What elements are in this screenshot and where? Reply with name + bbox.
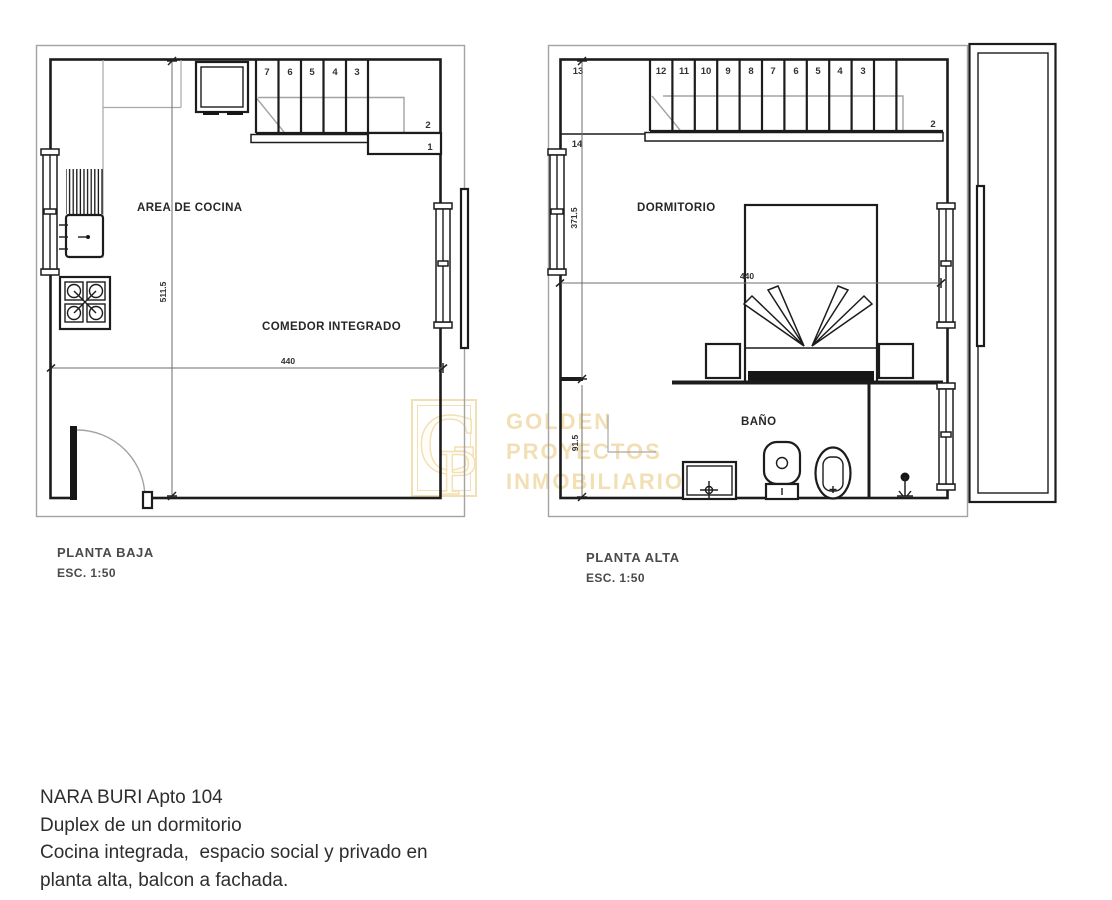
stair-number: 7 [770, 66, 775, 77]
stair-number: 4 [837, 66, 843, 77]
stair-number: 8 [748, 66, 753, 77]
stair-landing-number: 2 [930, 119, 935, 130]
room-label-bathroom: BAÑO [741, 415, 776, 428]
stair-last-step-number: 14 [572, 139, 583, 150]
stair-number: 4 [332, 67, 338, 78]
vanity-sink-icon [683, 462, 736, 500]
description-line: planta alta, balcon a fachada. [40, 867, 428, 895]
stair-number: 6 [287, 67, 292, 78]
stair-number: 3 [354, 67, 359, 78]
door-leaf [70, 426, 77, 500]
watermark: G P GOLDEN PROYECTOS INMOBILIARIOS [412, 400, 701, 508]
stair-number: 11 [679, 66, 690, 77]
watermark-line-1: GOLDEN [506, 409, 612, 434]
bidet-icon [816, 448, 851, 499]
watermark-logo: G P [412, 400, 479, 508]
entry-door [70, 426, 152, 508]
description-line: NARA BURI Apto 104 [40, 784, 428, 812]
stair-number: 12 [656, 66, 667, 77]
toilet-icon [764, 442, 800, 499]
drainboard-icon [66, 169, 103, 214]
floor-plan-sheet: G P GOLDEN PROYECTOS INMOBILIARIOS 7 6 5 [0, 0, 1112, 900]
stair-landing-number: 2 [425, 120, 430, 131]
plan-scale: ESC. 1:50 [57, 566, 116, 580]
nightstand-icon [879, 344, 913, 378]
stair-number: 5 [815, 66, 821, 77]
dimension-bedroom-height: 371.5 [569, 57, 587, 383]
dim-value: 371.5 [569, 207, 579, 229]
dim-value: 440 [740, 271, 754, 281]
stairs: 13 14 12 11 10 9 8 7 6 5 4 3 2 [560, 60, 943, 150]
dim-value: 440 [281, 356, 295, 366]
facade-rail [977, 186, 984, 346]
plan-title: PLANTA BAJA [57, 545, 154, 560]
description-text: NARA BURI Apto 104 Duplex de un dormitor… [40, 784, 428, 894]
sink-icon [59, 215, 103, 257]
room-label-kitchen: AREA DE COCINA [137, 202, 242, 214]
watermark-logo-letter-p: P [438, 440, 477, 508]
door-stop [143, 492, 152, 508]
plan-planta-baja: 7 6 5 4 3 2 1 [37, 46, 469, 581]
description-line: Duplex de un dormitorio [40, 812, 428, 840]
plan-scale: ESC. 1:50 [586, 571, 645, 585]
room-label-dining: COMEDOR INTEGRADO [262, 321, 401, 333]
stair-number: 7 [264, 67, 269, 78]
headboard [748, 371, 874, 382]
floor-plan-drawing: G P GOLDEN PROYECTOS INMOBILIARIOS 7 6 5 [0, 0, 1112, 900]
nightstand-icon [706, 344, 740, 378]
plan-planta-alta: 13 14 12 11 10 9 8 7 6 5 4 3 2 [548, 44, 1056, 585]
facade-rail [461, 189, 468, 348]
stair-number: 3 [860, 66, 865, 77]
room-label-bedroom: DORMITORIO [637, 202, 716, 214]
bed-icon [744, 205, 877, 383]
stair-number: 6 [793, 66, 798, 77]
dim-value: 511.5 [158, 281, 168, 302]
stair-first-step-number: 1 [427, 142, 433, 153]
shower-icon [897, 473, 913, 497]
plan-title: PLANTA ALTA [586, 550, 680, 565]
stair-number: 9 [725, 66, 730, 77]
dimension-height: 511.5 [158, 57, 177, 500]
dimension-width: 440 [47, 356, 447, 373]
dim-value: 91.5 [570, 434, 580, 451]
window-icon [548, 149, 566, 275]
window-icon [937, 383, 955, 490]
description-line: Cocina integrada, espacio social y priva… [40, 839, 428, 867]
stove-icon [60, 277, 110, 329]
fridge-icon [196, 62, 248, 115]
watermark-line-3: INMOBILIARIOS [506, 469, 701, 494]
stair-number: 5 [309, 67, 315, 78]
window-icon [41, 149, 59, 275]
stairs: 7 6 5 4 3 2 1 [251, 60, 441, 154]
kitchen-counter [103, 60, 181, 258]
window-icon [937, 203, 955, 328]
window-icon [434, 203, 452, 328]
stair-number: 10 [701, 66, 712, 77]
